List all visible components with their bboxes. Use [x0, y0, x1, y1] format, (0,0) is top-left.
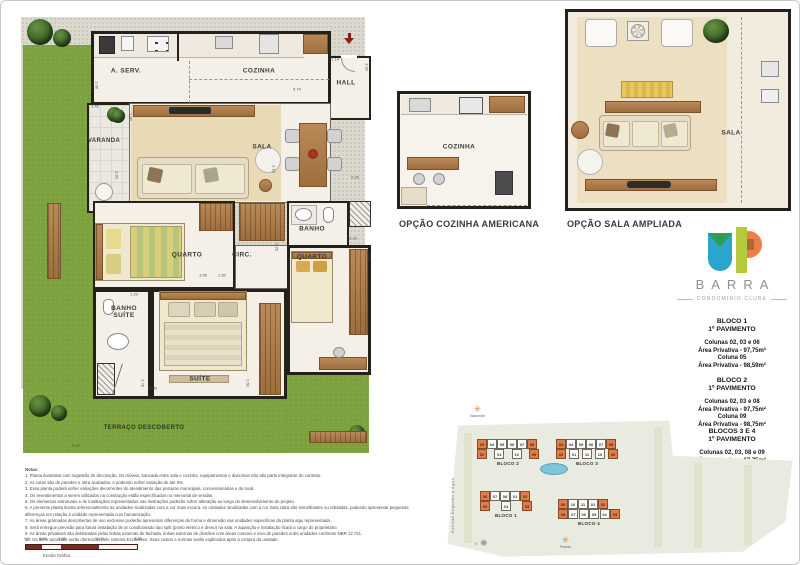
room-label-quarto1: QUARTO: [172, 252, 202, 259]
dim-label: 3.20: [365, 63, 370, 71]
unit-row: 0201111009: [556, 449, 618, 459]
sofa-icon: [599, 115, 691, 151]
unit-row: 030405060708: [477, 439, 539, 449]
round-table-icon: [571, 121, 589, 139]
dim-label: 6.92: [72, 443, 80, 448]
compass-icon: ✺ N: [480, 539, 488, 548]
notes-block: Notas: 1. Planta ilustrativa com sugestã…: [25, 467, 417, 544]
tree-icon: [53, 29, 71, 47]
unit-cell: 06: [480, 491, 490, 501]
room-label-sala-option: SALA: [721, 130, 740, 137]
unit-cell: 09: [529, 449, 539, 459]
room-label-banho: BANHO: [299, 226, 325, 233]
room-label-cozinha-option: COZINHA: [443, 144, 475, 151]
scale-bar: 0,0 0,50 1,00 2,00 3,00 Escala Gráfica: [25, 537, 145, 561]
room-label-sala: SALA: [252, 144, 271, 151]
closet-icon: [239, 203, 285, 241]
up-logo-icon: [702, 227, 762, 277]
unit-cell: 08: [527, 439, 537, 449]
unit-row: 050403: [480, 501, 532, 511]
flowers-icon: [308, 149, 318, 159]
unit-cell: 02: [556, 449, 566, 459]
unit-cell: 05: [576, 439, 586, 449]
info-bloco1: BLOCO 1 1º PAVIMENTO Colunas 02, 03 e 06…: [657, 318, 800, 370]
bath-fixture-icon: [761, 61, 779, 77]
bloco1-line: Colunas 02, 03 e 06: [657, 340, 800, 348]
unit-cell: 11: [582, 449, 592, 459]
bloco2-subtitle: 1º PAVIMENTO: [657, 385, 800, 393]
bench-icon: [309, 431, 367, 443]
unit-cell: 09: [608, 449, 618, 459]
dim-label: 1.42: [91, 104, 99, 109]
note-item: 6. A presente planta ilustra referencial…: [25, 505, 417, 518]
scale-bar-segments: [25, 544, 138, 550]
unit-cell: 06: [507, 439, 517, 449]
option-sala-plan: SALA: [565, 9, 791, 211]
unit-cell: 04: [501, 501, 511, 511]
room-label-banho-suite: BANHO SUÍTE: [108, 305, 140, 319]
armchair-icon: [661, 19, 693, 47]
dim-label: 1.14: [331, 57, 339, 62]
scale-tick: 0,50: [39, 537, 46, 541]
sun-nascente-icon: ✳ Nascente: [470, 405, 485, 418]
unit-cell: 09: [558, 499, 568, 509]
dining-chair-icon: [285, 157, 300, 171]
varanda-table-icon: [95, 183, 113, 201]
unit-cell: 10: [595, 449, 605, 459]
dim-label: 1.23: [130, 292, 138, 297]
unit-cell: 10: [568, 499, 578, 509]
unit-cell: 01: [494, 449, 504, 459]
dashed-line: [741, 17, 742, 203]
unit-cell: 06: [579, 509, 589, 519]
island-counter-icon: [407, 157, 459, 170]
bath-fixture-icon: [761, 89, 779, 103]
tree-icon: [27, 19, 53, 45]
bath-sink-icon: [295, 208, 312, 221]
dining-chair-icon: [327, 157, 342, 171]
tv-icon: [169, 107, 211, 114]
unit-row: 02011009: [477, 449, 539, 459]
kitchen-cabinet: [489, 96, 525, 113]
unit-cell: 05: [480, 501, 490, 511]
stool-icon: [433, 173, 445, 185]
sideboard-icon: [605, 101, 701, 113]
building-label: BLOCO 4: [558, 521, 620, 526]
unit-cell: 07: [596, 439, 606, 449]
building-label: BLOCO 1: [480, 513, 532, 518]
room-label-a-serv: A. SERV.: [111, 68, 141, 75]
unit-cell: 03: [477, 439, 487, 449]
unit-cell: 02: [477, 449, 487, 459]
unit-cell: 05: [589, 509, 599, 519]
notes-list: 1. Planta ilustrativa com sugestão de de…: [25, 473, 417, 543]
unit-cell: 10: [512, 449, 522, 459]
street-label: Estrada Engenho d'Água: [450, 443, 455, 533]
building-label: BLOCO 2: [477, 461, 539, 466]
bench-icon: [47, 203, 61, 279]
kitchen-cabinet: [303, 34, 328, 54]
sink-icon: [215, 36, 233, 49]
scale-caption: Escala Gráfica: [43, 553, 70, 558]
compass-label: N: [475, 542, 478, 546]
room-label-hall: HALL: [337, 80, 356, 87]
wardrobe-icon: [259, 303, 281, 395]
laundry-tank-icon: [121, 36, 134, 51]
room-label-varanda: VARANDA: [88, 138, 120, 144]
unit-cell: 07: [490, 491, 500, 501]
unit-cell: 02: [598, 499, 608, 509]
option-sala-title: OPÇÃO SALA AMPLIADA: [567, 219, 682, 229]
landscape-stripe: [694, 463, 702, 548]
building-bloco1: 0607080102 050403 BLOCO 1: [480, 491, 532, 518]
suite-sink-icon: [107, 333, 129, 350]
double-bed-icon: [159, 291, 247, 371]
kitchen-divider-wall: [177, 31, 179, 61]
bloco1-title: BLOCO 1: [657, 318, 800, 326]
floorplan-page: A. SERV. COZINHA HALL VARANDA SALA BANHO…: [0, 0, 800, 565]
sink-icon: [409, 98, 431, 112]
scale-tick: 1,00: [58, 537, 65, 541]
bloco1-line: Área Privativa - 98,59m²: [657, 363, 800, 371]
unit-cell: 07: [568, 509, 578, 519]
unit-cell: 08: [606, 439, 616, 449]
unit-cell: 04: [600, 509, 610, 519]
stove-icon: [147, 36, 169, 52]
dim-label: 1.08: [95, 81, 100, 89]
sun-poente-icon: ✳ Poente: [560, 536, 571, 549]
sun-nascente-label: Nascente: [470, 414, 485, 418]
brand-name: BARRA: [677, 277, 787, 292]
building-label: BLOCO 3: [556, 461, 618, 466]
room-label-terraco: TERRAÇO DESCOBERTO: [104, 425, 185, 431]
dim-label: 2.40: [129, 113, 134, 121]
dim-label: 2.23: [349, 236, 357, 241]
dim-label: 5.74: [293, 87, 301, 92]
unit-cell: 03: [522, 501, 532, 511]
unit-row: 080706050403: [558, 509, 620, 519]
armchair-icon: [585, 19, 617, 47]
unit-cell: 04: [566, 439, 576, 449]
main-floorplan: A. SERV. COZINHA HALL VARANDA SALA BANHO…: [19, 7, 375, 459]
bloco2-title: BLOCO 2: [657, 377, 800, 385]
building-bloco4: 0910110102 080706050403 BLOCO 4: [558, 499, 620, 526]
unit-cell: 07: [517, 439, 527, 449]
unit-cell: 11: [578, 499, 588, 509]
rug-icon: [621, 81, 673, 98]
bloco1-line: Área Privativa - 97,75m²: [657, 348, 800, 356]
tree-icon: [51, 405, 67, 421]
wardrobe-icon: [349, 249, 368, 335]
dim-label: 2.60: [246, 379, 251, 387]
option-kitchen-title: OPÇÃO COZINHA AMERICANA: [399, 219, 539, 229]
dim-label: 2.78: [141, 379, 146, 387]
site-map: 030405060708 02011009 BLOCO 2 0304050607…: [444, 403, 796, 563]
landscape-stripe: [654, 427, 662, 547]
round-chair-icon: [577, 149, 603, 175]
dim-label: 3.05: [199, 273, 207, 278]
room-label-quarto2: QUARTO: [297, 254, 327, 261]
dim-label: 2.20: [115, 171, 120, 179]
bloco1-subtitle: 1º PAVIMENTO: [657, 326, 800, 334]
desk-chair-icon: [333, 347, 345, 358]
building-bloco3: 030405060708 0201111009 BLOCO 3: [556, 439, 618, 466]
dashed-line: [427, 205, 527, 206]
dim-label: 2.15: [272, 165, 277, 173]
sun-poente-label: Poente: [560, 545, 571, 549]
scale-tick: 0,0: [24, 537, 29, 541]
armchair-icon: [255, 147, 281, 173]
brand-tagline: CONDOMÍNIO CLUBE: [677, 296, 787, 302]
dim-label: 3.30: [149, 386, 157, 391]
unit-cell: 01: [569, 449, 579, 459]
unit-cell: 04: [487, 439, 497, 449]
fridge-icon: [259, 34, 279, 54]
plant-icon: [703, 19, 729, 43]
unit-row: 0910110102: [558, 499, 620, 509]
toilet-icon: [323, 207, 334, 223]
unit-row: 030405060708: [556, 439, 618, 449]
option-kitchen-plan: COZINHA: [397, 91, 531, 209]
scale-tick: 3,00: [134, 537, 141, 541]
unit-cell: 02: [520, 491, 530, 501]
cabinet-icon: [401, 187, 427, 205]
washer-icon: [99, 36, 115, 54]
building-bloco2: 030405060708 02011009 BLOCO 2: [477, 439, 539, 466]
side-table-icon: [259, 179, 272, 192]
dim-label: 2.25: [275, 243, 280, 251]
stool-icon: [413, 173, 425, 185]
landscape-stripe: [464, 433, 472, 543]
fan-icon: [631, 24, 645, 38]
room-label-circ: CIRC.: [232, 252, 252, 259]
room-label-suite: SUÍTE: [189, 376, 210, 383]
tree-icon: [29, 395, 51, 417]
oven-icon: [459, 97, 483, 114]
unit-cell: 06: [586, 439, 596, 449]
desk-icon: [319, 357, 367, 370]
wardrobe-icon: [199, 203, 233, 231]
dashed-line: [189, 61, 190, 103]
dim-label: 1.50: [218, 273, 226, 278]
unit-cell: 03: [556, 439, 566, 449]
brand-logo: BARRA CONDOMÍNIO CLUBE: [677, 227, 787, 302]
fridge-icon: [495, 171, 513, 195]
bloco1-line: Coluna 05: [657, 355, 800, 363]
tv-icon: [627, 181, 671, 188]
single-bed-icon: [291, 251, 333, 323]
dim-label: 0.20: [351, 175, 359, 180]
unit-cell: 03: [610, 509, 620, 519]
dim-label: 3.15: [367, 253, 372, 261]
unit-cell: 08: [558, 509, 568, 519]
unit-cell: 01: [588, 499, 598, 509]
shower-box: [349, 201, 371, 227]
dashed-line: [189, 79, 329, 80]
plant-icon: [111, 109, 125, 123]
dining-chair-icon: [285, 129, 300, 143]
scale-tick: 2,00: [96, 537, 103, 541]
unit-cell: 01: [510, 491, 520, 501]
dining-chair-icon: [327, 129, 342, 143]
room-label-cozinha: COZINHA: [243, 68, 275, 75]
landscape-stripe: [744, 465, 752, 545]
unit-row: 0607080102: [480, 491, 532, 501]
unit-cell: 05: [497, 439, 507, 449]
unit-cell: 08: [500, 491, 510, 501]
north-arrow-icon: [344, 33, 354, 44]
sofa-icon: [137, 157, 249, 199]
